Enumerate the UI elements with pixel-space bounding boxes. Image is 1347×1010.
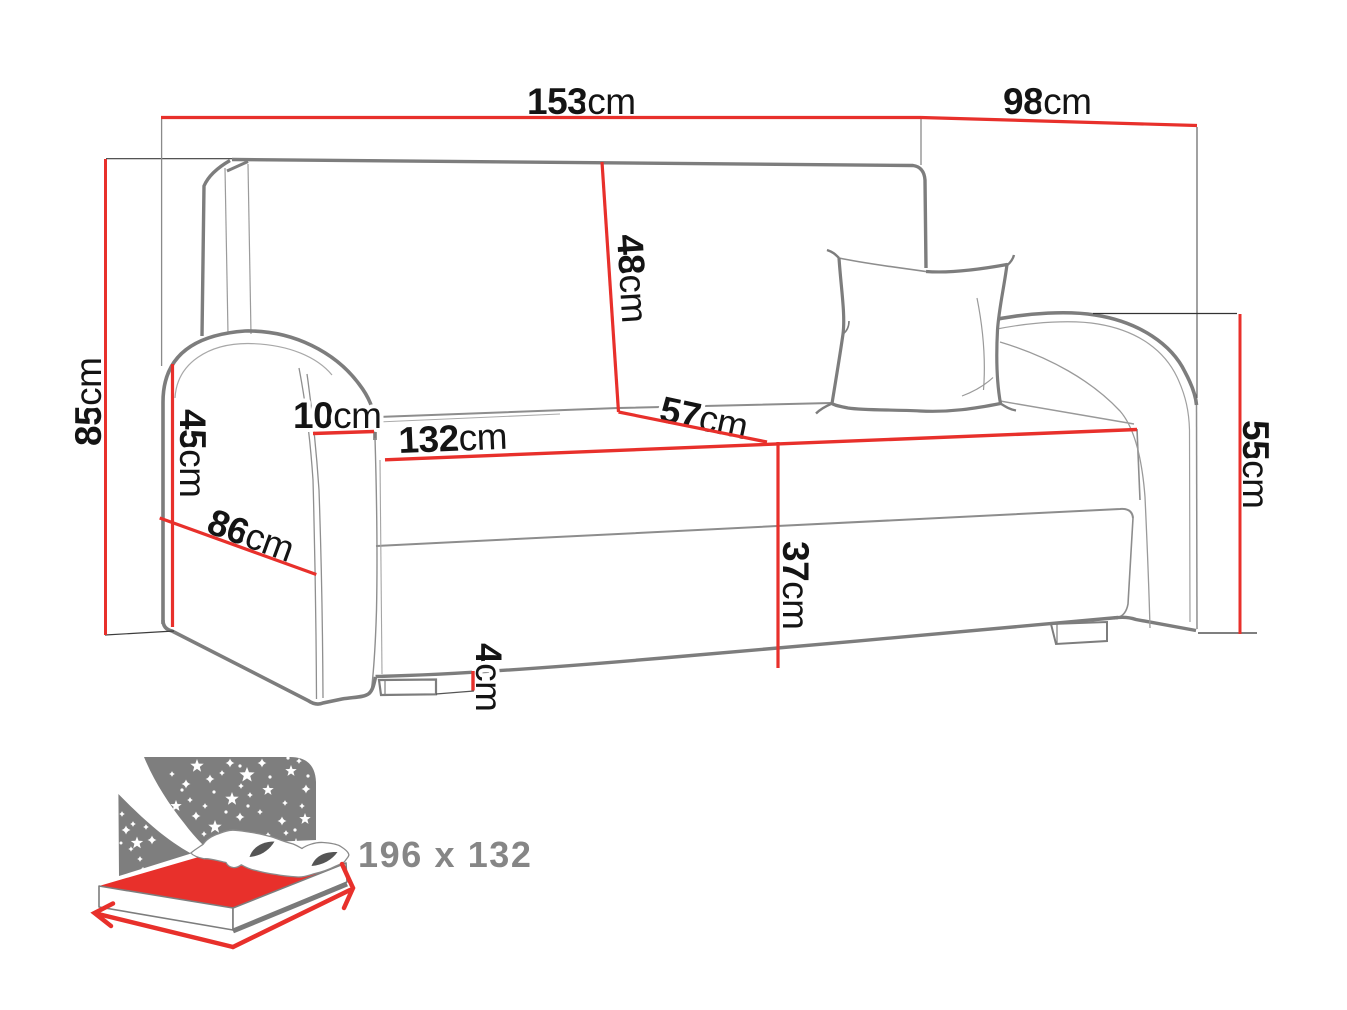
- svg-text:45cm: 45cm: [172, 409, 213, 497]
- svg-text:85cm: 85cm: [68, 358, 109, 446]
- svg-text:37cm: 37cm: [775, 541, 816, 629]
- svg-text:196 x 132: 196 x 132: [358, 834, 533, 875]
- svg-text:153cm: 153cm: [527, 81, 636, 122]
- svg-text:98cm: 98cm: [1003, 81, 1091, 122]
- svg-text:48cm: 48cm: [609, 233, 655, 324]
- svg-text:10cm: 10cm: [293, 395, 381, 436]
